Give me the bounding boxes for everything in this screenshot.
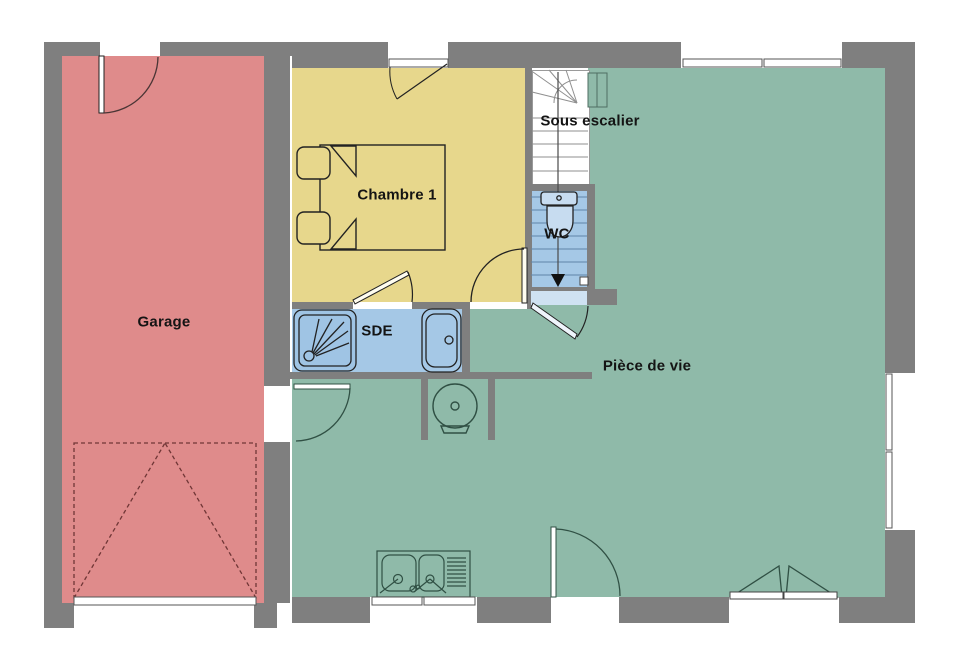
kitchen-window-icon [372,597,475,605]
entry-door-icon [551,527,620,597]
living-top-window-icon [683,59,841,67]
chambre-door-icon [471,248,527,303]
shower-icon [294,310,356,371]
garage-door-sill [74,597,256,605]
bathtub-icon [422,309,461,372]
wc-door-icon [531,303,588,339]
garage-door-icon [74,443,256,598]
french-door-icon [730,566,837,599]
sde-door-icon [353,271,412,304]
label-garage: Garage [138,314,191,331]
floor-plan: Garage Chambre 1 Sous escalier WC SDE Pi… [0,0,960,665]
label-piece-de-vie: Pièce de vie [603,358,691,375]
garage-living-door-icon [294,384,350,441]
label-chambre1: Chambre 1 [357,187,436,204]
plan-linework [0,0,960,665]
kitchen-sink-icon [377,551,470,597]
label-sde: SDE [361,323,392,340]
water-heater-icon [433,384,477,433]
chambre-window-icon [389,59,448,99]
label-sous-escalier: Sous escalier [540,113,639,130]
stairs-direction-arrow-icon [551,72,588,287]
right-window-icon [886,374,892,528]
garage-service-door-icon [99,56,158,113]
label-wc: WC [544,226,569,243]
